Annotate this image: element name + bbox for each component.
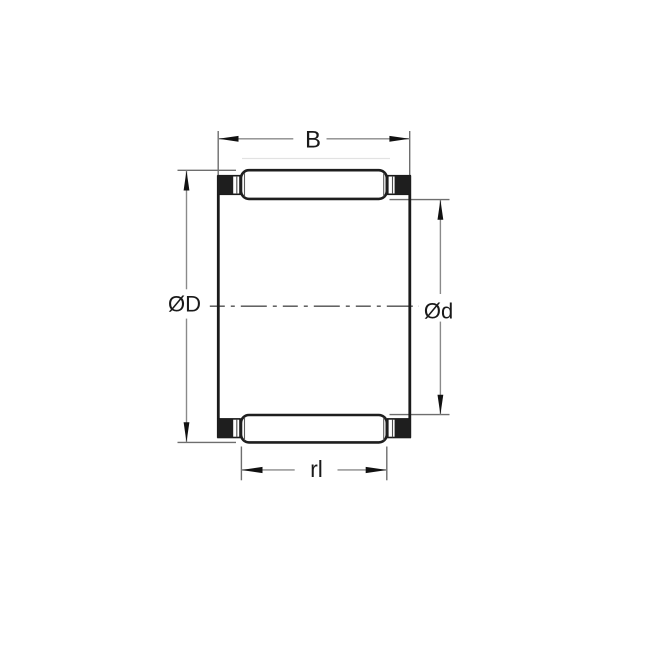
- svg-text:B: B: [305, 126, 321, 153]
- svg-text:Ød: Ød: [424, 298, 453, 323]
- svg-text:rl: rl: [310, 456, 323, 482]
- svg-text:ØD: ØD: [168, 291, 201, 316]
